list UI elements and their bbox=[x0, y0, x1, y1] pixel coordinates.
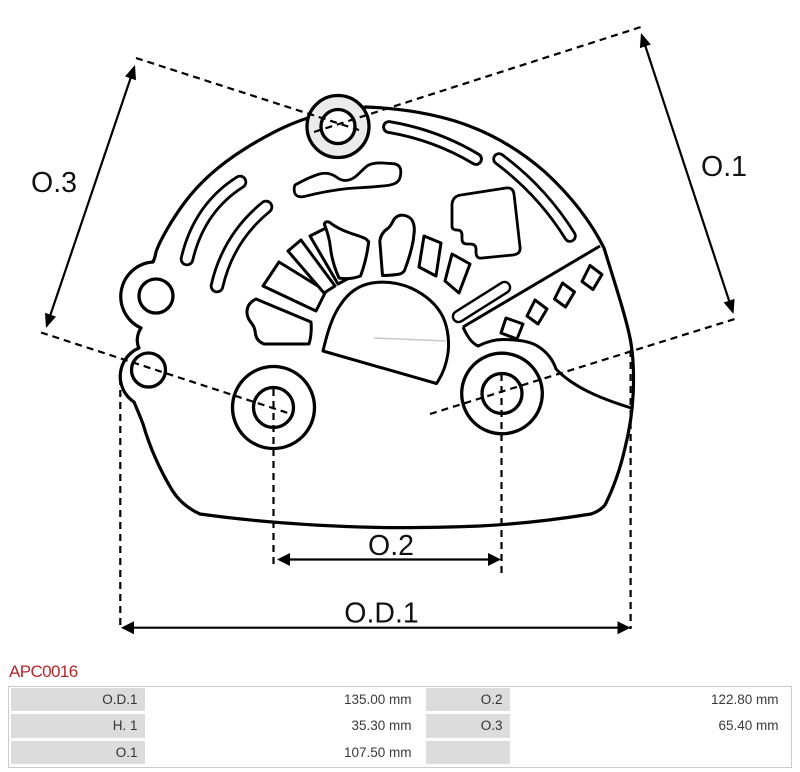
svg-text:O.2: O.2 bbox=[368, 530, 414, 562]
svg-text:O.1: O.1 bbox=[701, 151, 747, 183]
svg-text:O.3: O.3 bbox=[31, 167, 77, 199]
svg-text:O.D.1: O.D.1 bbox=[344, 598, 418, 630]
